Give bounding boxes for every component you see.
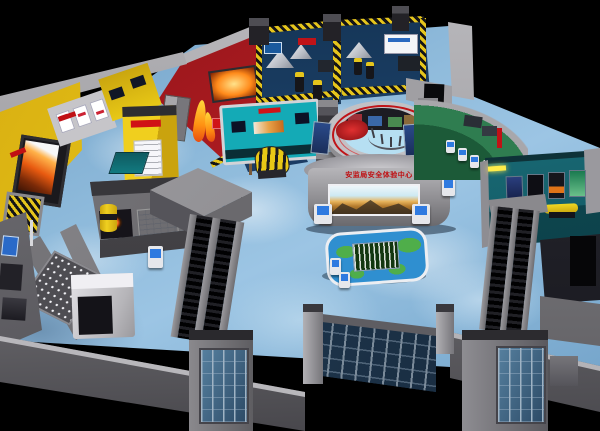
exhibit-machine (463, 115, 482, 128)
white-box-room (71, 273, 135, 339)
escalator-shaft-right (462, 330, 548, 431)
kiosk-screen (471, 157, 477, 162)
exhibit-post (295, 72, 304, 92)
red-sign (298, 38, 316, 45)
booth-image-strip (253, 120, 284, 134)
led-landscape-screen (328, 184, 420, 216)
wall-exhibit (1, 297, 26, 321)
poster-art (78, 112, 87, 117)
screen-mountains (330, 196, 418, 214)
display-pole (30, 220, 33, 246)
roof-column (392, 6, 409, 31)
escalator-shaft-left (189, 330, 253, 431)
kiosk-screen (332, 260, 340, 267)
poster (548, 172, 565, 199)
alcove-screen (108, 86, 124, 100)
kiosk-screen (444, 180, 453, 188)
hazard-stripe (420, 18, 426, 90)
kiosk-screen (150, 249, 161, 258)
info-kiosk (339, 272, 350, 288)
roof-column (323, 14, 341, 41)
kiosk-screen (341, 274, 349, 281)
whiteboard (384, 34, 418, 54)
info-kiosk (314, 204, 332, 224)
poster (569, 170, 586, 197)
wall-exhibit (0, 263, 23, 290)
exhibit-machine (482, 126, 497, 136)
fire-simulation-screen (208, 65, 260, 103)
map-circuit-panel (352, 241, 400, 272)
box-room-roof (71, 273, 133, 289)
info-kiosk (470, 155, 479, 168)
alcove-screen (130, 75, 146, 89)
exhibit-post (354, 58, 362, 75)
teal-floor-mat (108, 152, 149, 174)
exhibit-post (366, 62, 374, 79)
roof-column (249, 18, 269, 45)
poster-art (96, 110, 105, 115)
column-cap (436, 304, 454, 312)
red-sign (497, 128, 502, 148)
exhibit-machine (318, 60, 334, 72)
shaft-top-band (462, 330, 548, 340)
dark-doorway (570, 236, 596, 286)
grey-step-box (550, 356, 578, 386)
info-kiosk (442, 178, 455, 196)
glass-stair-panel (496, 346, 546, 424)
bench-base (549, 212, 575, 218)
bin-band (100, 214, 117, 220)
info-kiosk (446, 140, 455, 153)
exhibit-machine (398, 56, 420, 71)
kiosk-screen (459, 150, 465, 155)
glass-stair-panel (199, 348, 249, 424)
facade-column (436, 304, 454, 354)
exhibit-post (313, 80, 322, 100)
info-kiosk (458, 148, 467, 161)
red-logo (258, 107, 280, 114)
shaft-top-band (189, 330, 253, 340)
facade-column (303, 304, 323, 384)
blue-display-board (310, 121, 331, 155)
red-logo (131, 120, 161, 128)
exhibition-hall-render: 安监局安全体验中心 (0, 0, 600, 431)
yellow-bin (100, 204, 117, 232)
kiosk-screen (415, 206, 428, 214)
pendulum (390, 137, 392, 147)
booth-screen (295, 112, 310, 124)
whiteboard-content (388, 38, 410, 42)
info-kiosk (412, 204, 430, 224)
kiosk-screen (317, 206, 330, 214)
booth-screen (231, 121, 246, 133)
booth-roof (122, 105, 176, 117)
column-cap (303, 304, 323, 312)
info-kiosk (148, 246, 163, 268)
kiosk-screen (447, 142, 453, 147)
box-room-opening (78, 296, 113, 335)
wall-screen (1, 235, 19, 257)
